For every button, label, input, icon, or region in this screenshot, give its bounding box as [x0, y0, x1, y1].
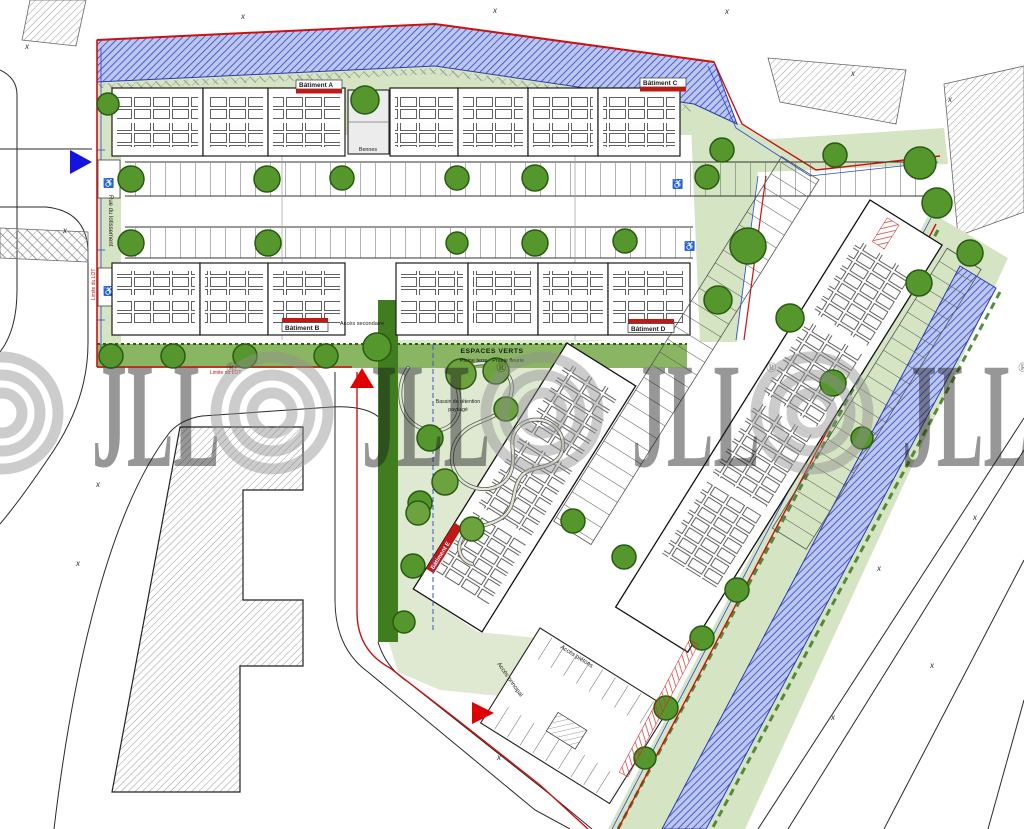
tree-icon [401, 554, 425, 578]
crosswalk-strip [0, 228, 88, 262]
tree-icon [522, 165, 548, 191]
tree-icon [776, 304, 804, 332]
watermark-brand: JLL [902, 333, 1024, 499]
tree-icon [445, 166, 469, 190]
wheelchair-icon: ♿ [684, 240, 695, 251]
watermark-registered: ® [766, 361, 777, 376]
bennes-label: Bennes [359, 147, 378, 153]
survey-mark: x [929, 661, 935, 670]
building-b-label: Bâtiment B [285, 325, 320, 332]
acces-secondaire-label: Accès secondaire [340, 321, 384, 327]
survey-mark: x [830, 713, 836, 722]
tree-icon [957, 240, 983, 266]
watermark-brand: JLL [632, 333, 760, 499]
watermark-registered: ® [226, 361, 237, 376]
survey-mark: x [24, 42, 30, 51]
tree-icon [393, 611, 415, 633]
hatch-top-right [768, 58, 906, 124]
tree-icon [351, 86, 379, 114]
building-c-block [390, 88, 680, 156]
watermark-registered: ® [496, 361, 507, 376]
tree-icon [704, 286, 732, 314]
tree-icon [922, 188, 952, 218]
tree-icon [254, 166, 280, 192]
tree-icon [710, 138, 734, 162]
tree-icon [118, 230, 144, 256]
survey-mark: x [724, 7, 730, 16]
building-a-block [112, 88, 345, 156]
tree-icon [118, 166, 144, 192]
building-c-label: Bâtiment C [643, 80, 678, 87]
watermark-brand: JLL [362, 333, 490, 499]
tree-icon [330, 166, 354, 190]
buildings-north [112, 88, 690, 335]
tree-icon [406, 501, 430, 525]
tree-icon [823, 143, 847, 167]
watermark-brand: JLL [92, 333, 220, 499]
entry-marker-blue [70, 150, 92, 174]
street-name-label: Rue du lotissement [107, 195, 113, 247]
tree-icon [522, 230, 548, 256]
wheelchair-icon: ♿ [103, 177, 114, 188]
tree-icon [460, 517, 484, 541]
tree-icon [314, 344, 338, 368]
tree-icon [612, 545, 636, 569]
survey-mark: x [75, 559, 81, 568]
survey-mark: x [240, 12, 246, 21]
tree-icon [906, 270, 932, 296]
tree-icon [255, 230, 281, 256]
hatch-right-edge [944, 66, 1024, 236]
tree-icon [561, 509, 585, 533]
site-plan-svg: ♿ ♿ ♿ ♿ [0, 0, 1024, 829]
building-a-label: Bâtiment A [299, 82, 333, 89]
site-plan-canvas: ♿ ♿ ♿ ♿ [0, 0, 1024, 829]
tree-icon [695, 165, 719, 189]
tree-icon [97, 93, 119, 115]
tree-icon [725, 578, 749, 602]
survey-mark: x [972, 513, 978, 522]
survey-mark: x [876, 564, 882, 573]
tree-icon [613, 229, 637, 253]
tree-icon [904, 147, 936, 179]
survey-mark: x [492, 6, 498, 15]
tree-icon [446, 232, 468, 254]
limite-lot-label-vertical: Limite du LOT [91, 269, 97, 300]
watermark-registered: ® [1018, 361, 1024, 376]
wheelchair-icon: ♿ [672, 178, 683, 189]
hatch-top-left [22, 0, 86, 46]
tree-icon [730, 228, 766, 264]
building-d-label: Bâtiment D [631, 326, 666, 333]
